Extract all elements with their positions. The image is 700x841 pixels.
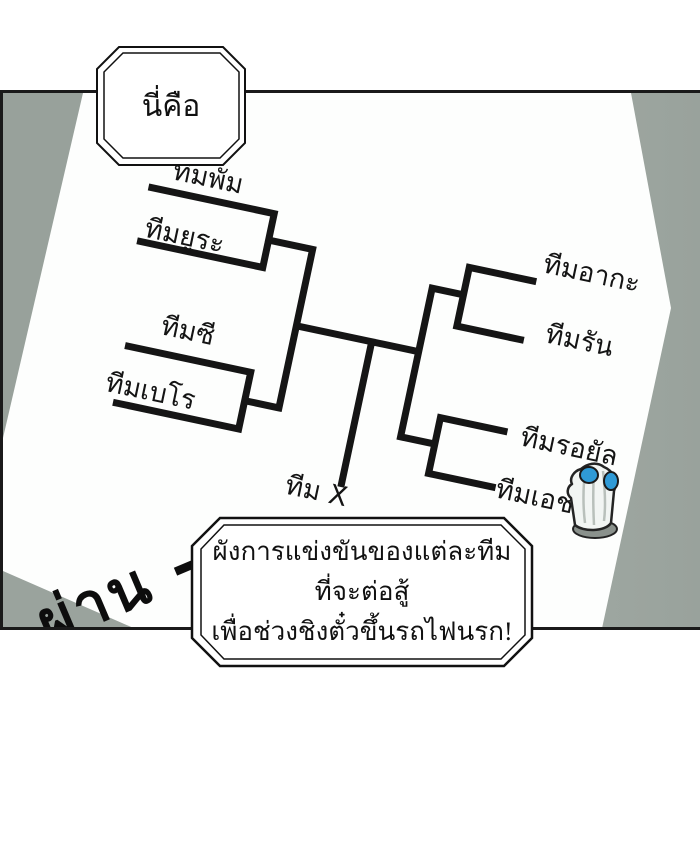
speech-bubble: นี่คือ (95, 45, 247, 167)
caption-line-1: ผังการแข่งขันของแต่ละทีม (213, 532, 512, 572)
caption-line-3: เพื่อช่วงชิงตั๋วขึ้นรถไฟนรก! (211, 612, 512, 652)
caption-box: ผังการแข่งขันของแต่ละทีม ที่จะต่อสู้ เพื… (190, 516, 534, 668)
caption-text: ผังการแข่งขันของแต่ละทีม ที่จะต่อสู้ เพื… (204, 526, 520, 658)
caption-line-2: ที่จะต่อสู้ (315, 572, 410, 612)
page-background: ทีมพัม ทีมยูระ ทีมซี ทีมเบโร ทีมอากะ ทีม… (0, 0, 700, 841)
speech-bubble-text: นี่คือ (95, 45, 247, 167)
ghost-character-icon (559, 459, 627, 541)
